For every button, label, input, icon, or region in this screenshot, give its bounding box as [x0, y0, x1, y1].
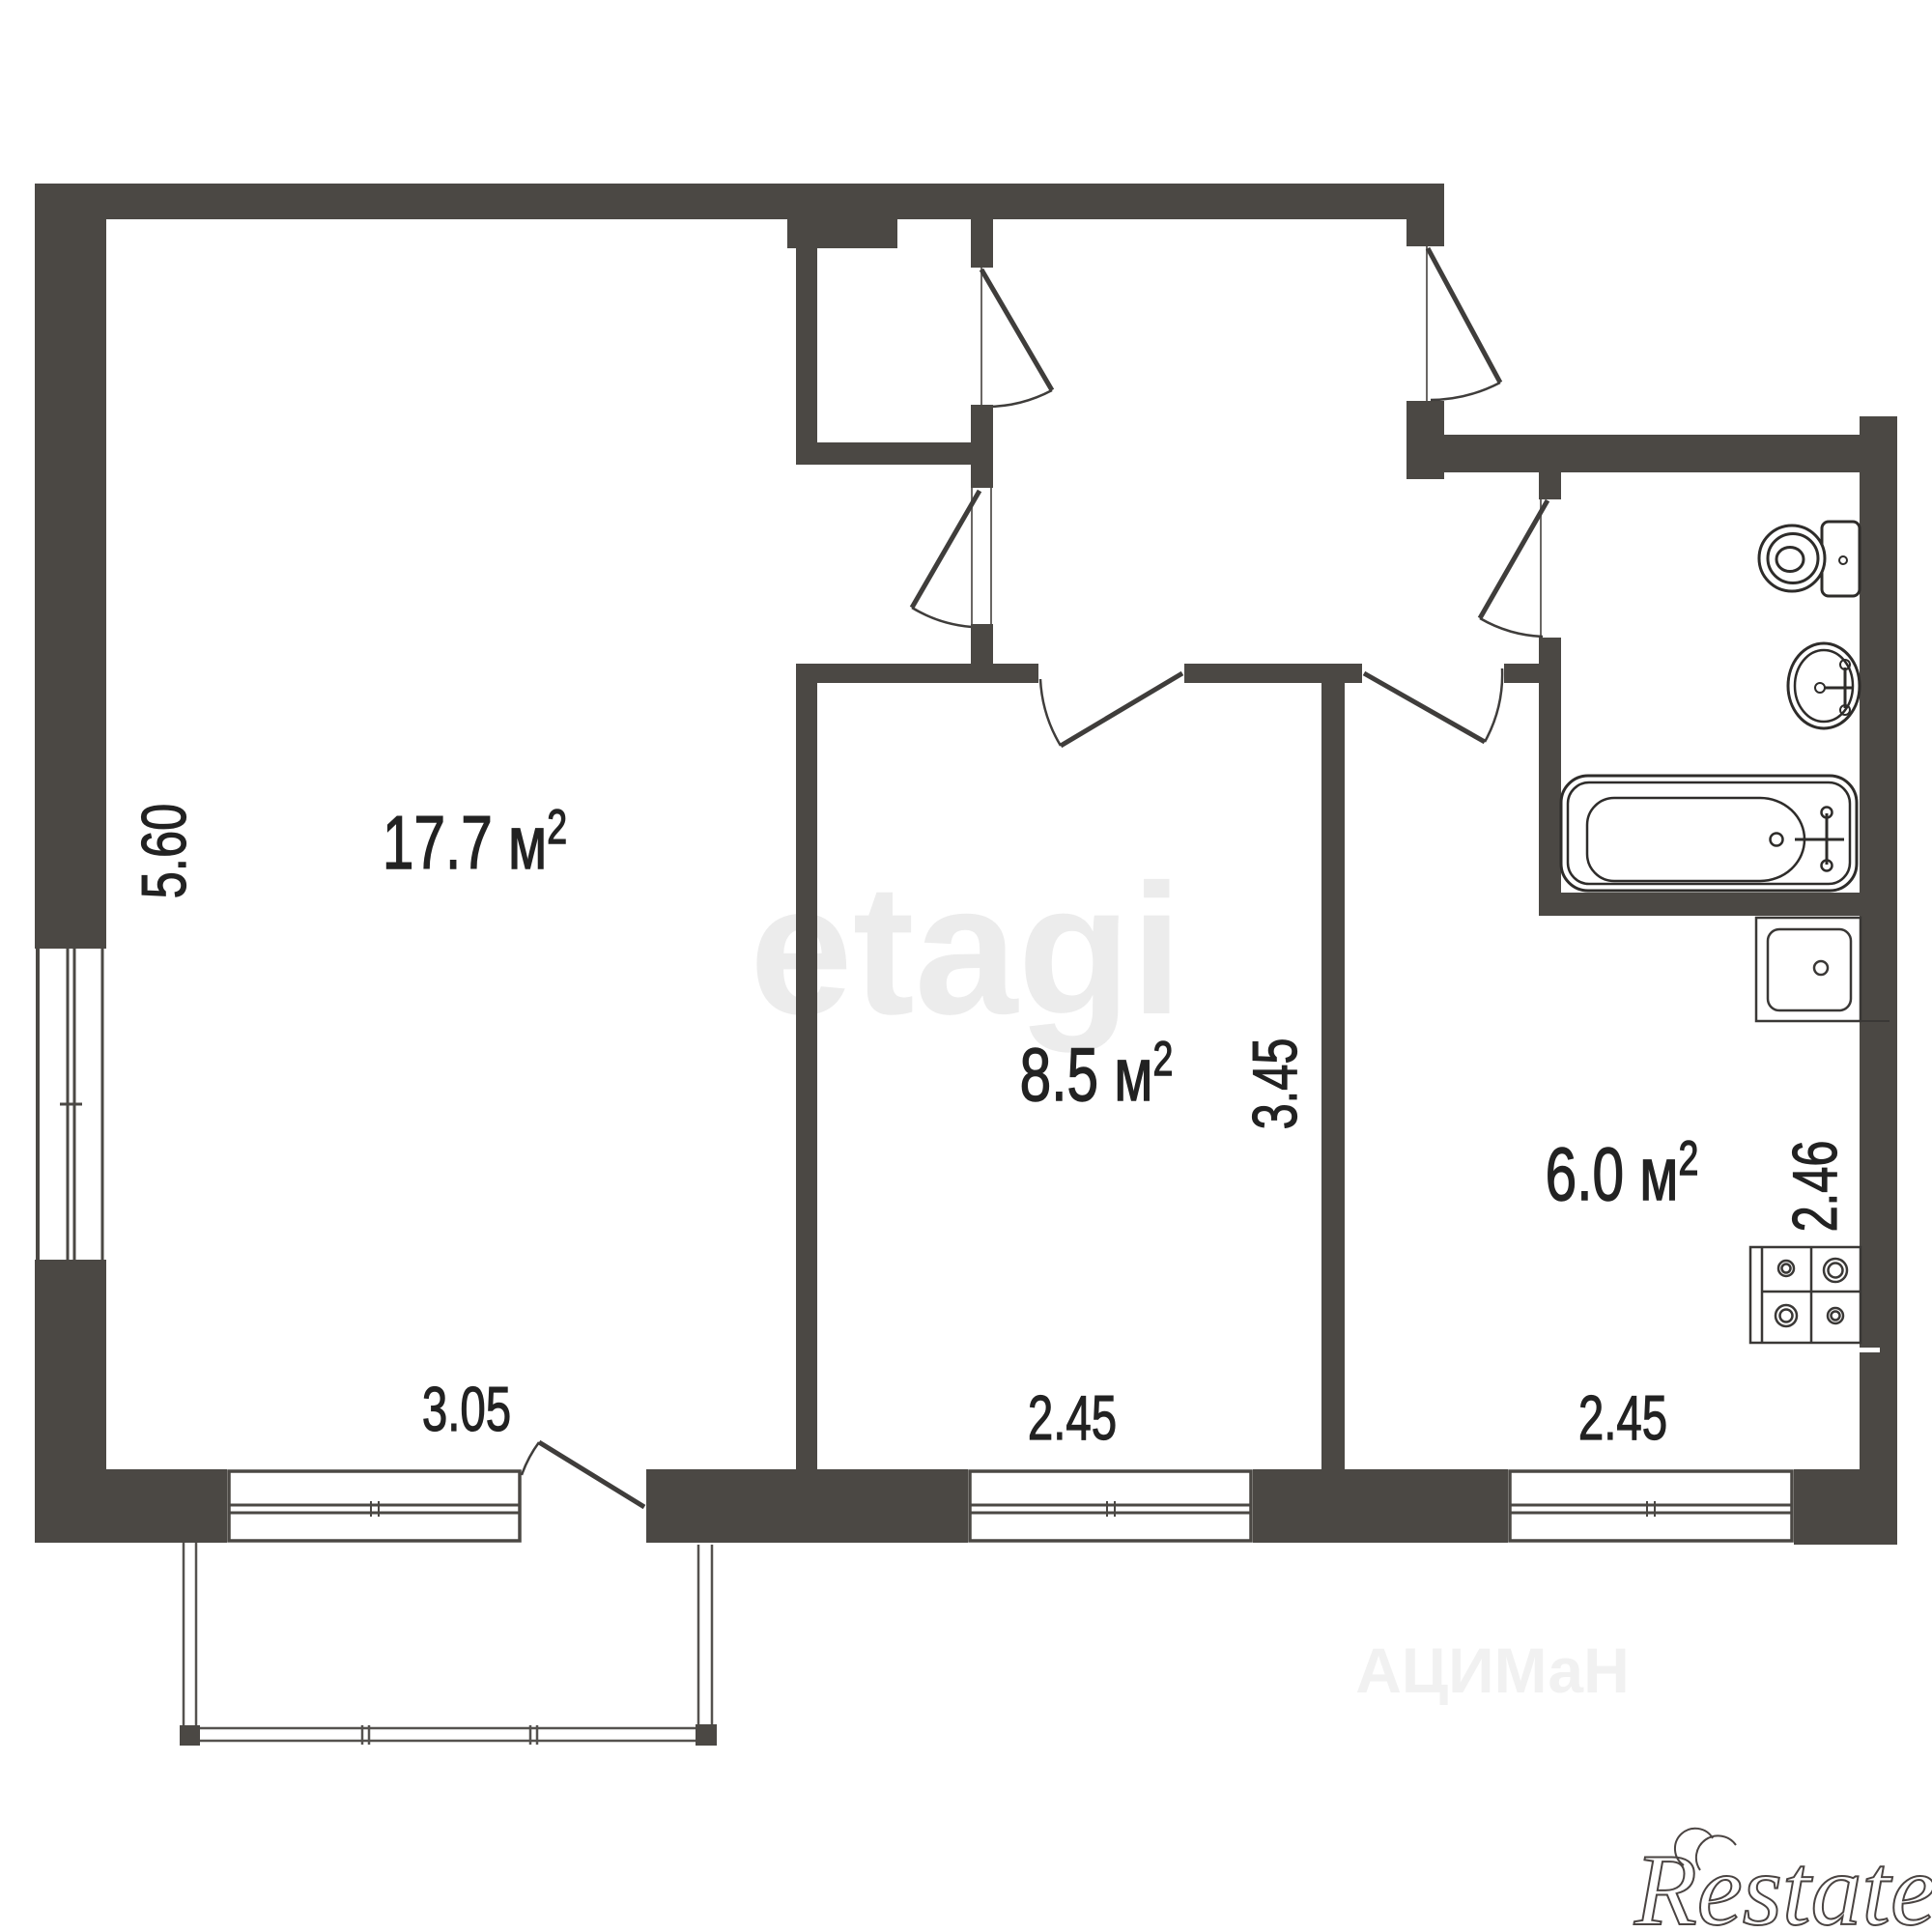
svg-text:6.0 м2: 6.0 м2 [1546, 1132, 1699, 1216]
svg-text:3.05: 3.05 [422, 1375, 511, 1445]
svg-text:8.5 м2: 8.5 м2 [1020, 1033, 1174, 1117]
svg-text:2.45: 2.45 [1028, 1383, 1117, 1454]
svg-text:2.46: 2.46 [1780, 1141, 1850, 1233]
svg-text:2.45: 2.45 [1578, 1383, 1667, 1454]
svg-text:Restate: Restate [1634, 1833, 1932, 1932]
svg-text:17.7 м2: 17.7 м2 [383, 801, 567, 885]
svg-text:5.60: 5.60 [129, 804, 199, 899]
svg-text:АЦИМаН: АЦИМаН [1355, 1634, 1629, 1706]
svg-text:3.45: 3.45 [1240, 1038, 1310, 1130]
